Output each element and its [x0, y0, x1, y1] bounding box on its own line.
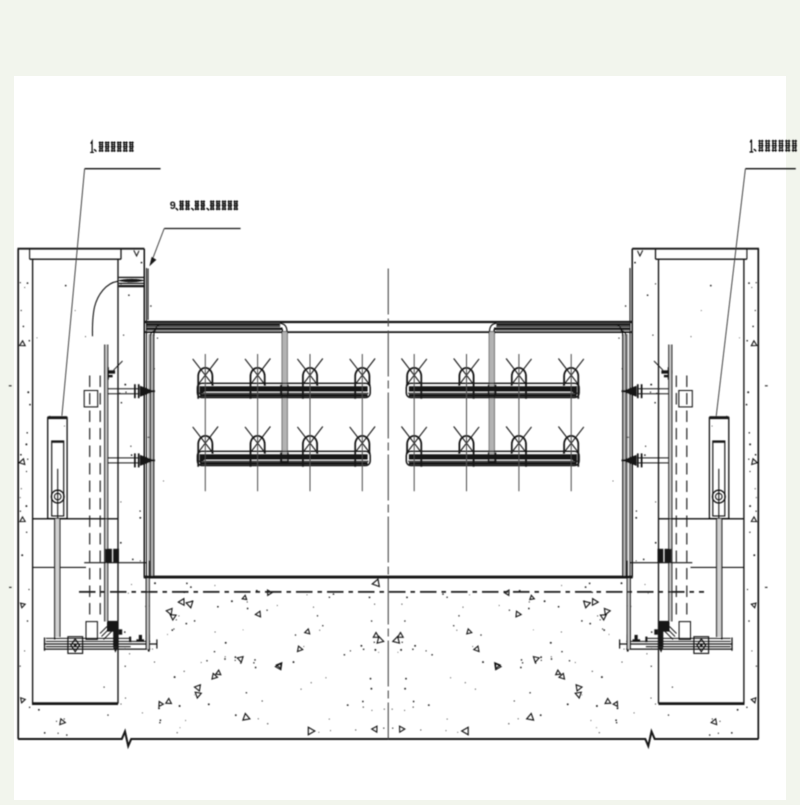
svg-text:9: 9	[170, 200, 176, 212]
